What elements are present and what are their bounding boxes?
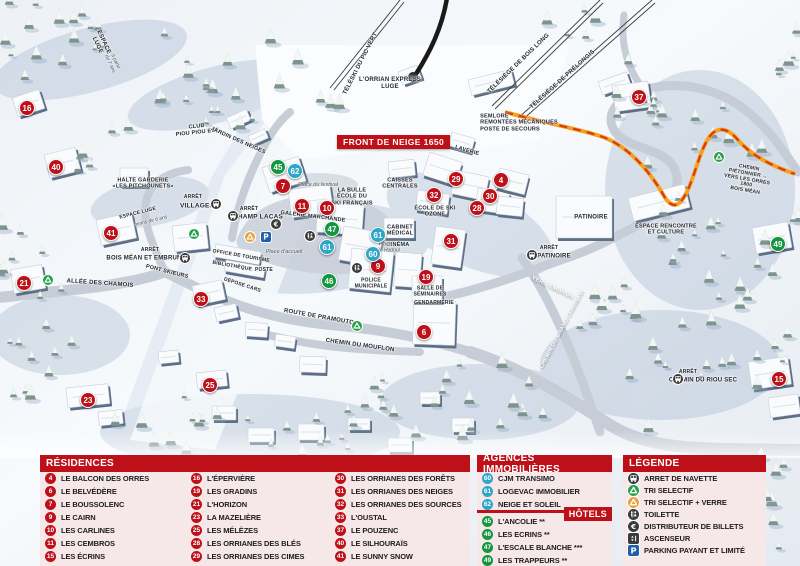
legend-item-label: CJM TRANSIMO — [498, 474, 555, 483]
legend-item: 30LES ORRIANES DES FORÊTS — [330, 472, 470, 485]
legend-item: 40LE SILHOURAÏS — [330, 537, 470, 550]
map-marker-4[interactable]: 4 — [493, 172, 509, 188]
legend-item-label: LES CEMBROS — [61, 539, 115, 548]
legend-item-label: LE SILHOURAÏS — [351, 539, 408, 548]
marker-number-badge: 33 — [335, 512, 346, 523]
marker-number-badge: 40 — [335, 538, 346, 549]
bus-icon — [628, 473, 639, 484]
map-marker-15[interactable]: 15 — [771, 371, 787, 387]
legend-item-label: LE BELVÉDÈRE — [61, 487, 117, 496]
recycle-green-icon — [352, 321, 362, 331]
toilet-icon — [628, 509, 639, 520]
map-label: VERS EMBRUN → — [530, 275, 582, 305]
legend-item: 9LE CAIRN — [40, 511, 186, 524]
map-label: ÉCOLE DE SKI OZONE — [414, 206, 455, 219]
legend-item-label: LES MÉLÈZES — [207, 526, 258, 535]
legend-item: 19LES GRADINS — [186, 485, 330, 498]
residences-column: 16L'ÉPERVIÈRE19LES GRADINS21L'HORIZON23L… — [186, 472, 330, 563]
marker-number-badge: 30 — [335, 473, 346, 484]
legend-item-label: NEIGE ET SOLEIL — [498, 500, 561, 509]
bus-icon — [673, 374, 683, 384]
legend-item: 33L'OUSTAL — [330, 511, 470, 524]
marker-number-badge: 28 — [191, 538, 202, 549]
marker-number-badge: 10 — [45, 525, 56, 536]
map-label: ROUTE DE PRAMOUTON — [283, 308, 359, 328]
marker-number-badge: 21 — [191, 499, 202, 510]
legend-item: ASCENSEUR — [623, 532, 766, 544]
marker-number-badge: 41 — [335, 551, 346, 562]
legende-header: LÉGENDE — [623, 455, 766, 472]
legend-item: 46LES ECRINS ** — [477, 528, 612, 541]
map-label: SALLE DE SÉMINAIRES — [413, 286, 446, 298]
marker-number-badge: 29 — [191, 551, 202, 562]
legend-item-label: L'ANCOLIE ** — [498, 517, 545, 526]
map-label: PATINOIRE — [537, 254, 571, 261]
map-label: GENDARMERIE — [414, 301, 454, 307]
map-label: POSTE — [255, 268, 273, 274]
legend-agences-hotels: AGENCES IMMOBILIÈRES 60CJM TRANSIMO61LOG… — [477, 455, 612, 566]
hotels-header: HÔTELS — [564, 507, 612, 521]
legend-item: PARKING PAYANT ET LIMITÉ — [623, 544, 766, 556]
recycle-green-icon — [189, 229, 199, 239]
map-label: CHEMIN DU MOUFLON — [325, 338, 395, 354]
map-label: ARRÊT — [141, 248, 159, 254]
marker-number-badge: 46 — [482, 529, 493, 540]
marker-number-badge: 61 — [482, 486, 493, 497]
legend-item-label: LES CARLINES — [61, 526, 115, 535]
legend-item: 6LE BELVÉDÈRE — [40, 485, 186, 498]
legend-item: 16L'ÉPERVIÈRE — [186, 472, 330, 485]
euro-icon — [628, 521, 639, 532]
map-label: LA BULLE ÉCOLE DU SKI FRANÇAIS — [331, 188, 373, 207]
legend-item: 4LE BALCON DES ORRES — [40, 472, 186, 485]
legend-item: DISTRIBUTEUR DE BILLETS — [623, 520, 766, 532]
legend-item-label: LE BALCON DES ORRES — [61, 474, 149, 483]
legend-item-label: L'ESCALE BLANCHE *** — [498, 543, 582, 552]
map-marker-62[interactable]: 62 — [287, 163, 303, 179]
map-marker-46[interactable]: 46 — [321, 273, 337, 289]
map-label: JARDIN DES NEIGES — [210, 126, 266, 156]
map-marker-7[interactable]: 7 — [275, 178, 291, 194]
legend-item: 21L'HORIZON — [186, 498, 330, 511]
marker-number-badge: 16 — [191, 473, 202, 484]
marker-number-badge: 31 — [335, 486, 346, 497]
legend-item: 60CJM TRANSIMO — [477, 472, 612, 485]
legend-item: TRI SELECTIF — [623, 484, 766, 496]
marker-number-badge: 49 — [482, 555, 493, 566]
marker-number-badge: 47 — [482, 542, 493, 553]
legend-item: 7LE BOUSSOLENC — [40, 498, 186, 511]
legend-symbols: LÉGENDE ARRET DE NAVETTETRI SELECTIFTRI … — [623, 455, 766, 566]
recycle-green-icon — [628, 485, 639, 496]
legend-item-label: TRI SELECTIF — [644, 486, 693, 495]
map-label: ARRÊT — [184, 195, 202, 201]
recycle-yellow-icon — [245, 232, 255, 242]
marker-number-badge: 7 — [45, 499, 56, 510]
marker-number-badge: 4 — [45, 473, 56, 484]
marker-number-badge: 25 — [191, 525, 202, 536]
legend-item: 49LES TRAPPEURS ** — [477, 554, 612, 566]
legend-item-label: LES ECRINS ** — [498, 530, 550, 539]
map-label: BOIS MÉAN ET EMBRUN — [106, 256, 181, 263]
legend-item-label: LES TRAPPEURS ** — [498, 556, 567, 565]
legend-item-label: TOILETTE — [644, 510, 679, 519]
map-marker-41[interactable]: 41 — [103, 225, 119, 241]
recycle-green-icon — [43, 275, 53, 285]
map-marker-31[interactable]: 31 — [443, 233, 459, 249]
map-marker-11[interactable]: 11 — [294, 198, 310, 214]
toilet-icon — [352, 263, 362, 273]
marker-number-badge: 19 — [191, 486, 202, 497]
marker-number-badge: 37 — [335, 525, 346, 536]
recycle-yellow-icon — [628, 497, 639, 508]
map-marker-47[interactable]: 47 — [324, 221, 340, 237]
legend-item-label: L'OUSTAL — [351, 513, 387, 522]
map-marker-45[interactable]: 45 — [270, 159, 286, 175]
resort-map-page: € P — [0, 0, 800, 566]
euro-icon — [271, 219, 281, 229]
legend-item-label: DISTRIBUTEUR DE BILLETS — [644, 522, 743, 531]
map-label: CHEMIN PIÉTONNIER → VERS LES ORRES 1800 … — [718, 161, 775, 199]
bus-icon — [228, 211, 238, 221]
marker-number-badge: 6 — [45, 486, 56, 497]
legend-item-label: LE CAIRN — [61, 513, 96, 522]
recycle-green-icon — [714, 152, 724, 162]
marker-number-badge: 60 — [482, 473, 493, 484]
legend-item: 61LOGEVAC IMMOBILIER — [477, 485, 612, 498]
map-marker-60[interactable]: 60 — [365, 246, 381, 262]
legend-item: 23LA MAZELIÈRE — [186, 511, 330, 524]
map-marker-28[interactable]: 28 — [469, 200, 485, 216]
map-label: POLICE MUNICIPALE — [355, 278, 388, 290]
map-label: VILLAGES — [180, 202, 214, 209]
front-de-neige-banner: FRONT DE NEIGE 1650 — [337, 135, 450, 149]
map-label: BIBLIOTHÈQUE — [212, 261, 253, 274]
toilet-icon — [305, 231, 315, 241]
map-label: Place du festival — [298, 182, 338, 188]
map-label: Place d'accueil — [266, 249, 303, 255]
map-label: à partir de 7 ans — [103, 52, 122, 74]
map-label: SEMLORE REMONTÉES MÉCANIQUES POSTE DE SE… — [480, 114, 558, 133]
legend-item-label: LES ORRIANES DES FORÊTS — [351, 474, 455, 483]
map-marker-16[interactable]: 16 — [19, 100, 35, 116]
map-label: ESPACE RENCONTRE ET CULTURE — [635, 224, 697, 237]
map-marker-32[interactable]: 32 — [426, 187, 442, 203]
legend-item: 29LES ORRIANES DES CIMES — [186, 550, 330, 563]
map-marker-19[interactable]: 19 — [418, 269, 434, 285]
legend-item: 25LES MÉLÈZES — [186, 524, 330, 537]
marker-number-badge: 15 — [45, 551, 56, 562]
agences-header: AGENCES IMMOBILIÈRES — [477, 455, 612, 472]
marker-number-badge: 62 — [482, 499, 493, 510]
legend-item-label: L'HORIZON — [207, 500, 247, 509]
map-label: PATINOIRE — [574, 215, 608, 222]
map-marker-49[interactable]: 49 — [770, 236, 786, 252]
map-label: DÉPOSE CARS — [223, 277, 261, 294]
legend-item-label: LA MAZELIÈRE — [207, 513, 261, 522]
legend-item: 41LE SUNNY SNOW — [330, 550, 470, 563]
legend-item: 15LES ÉCRINS — [40, 550, 186, 563]
map-marker-29[interactable]: 29 — [448, 171, 464, 187]
marker-number-badge: 9 — [45, 512, 56, 523]
map-label: CABINET MÉDICAL — [387, 225, 413, 238]
map-marker-25[interactable]: 25 — [202, 377, 218, 393]
legend-item: 47L'ESCALE BLANCHE *** — [477, 541, 612, 554]
bus-icon — [180, 253, 190, 263]
map-label: ARRÊT — [540, 246, 558, 252]
legend-item: TOILETTE — [623, 508, 766, 520]
map-label: moins de 6 ans — [134, 215, 168, 229]
marker-number-badge: 32 — [335, 499, 346, 510]
residences-header: RÉSIDENCES — [40, 455, 470, 472]
map-marker-30[interactable]: 30 — [482, 188, 498, 204]
map-label: TÉLÉSIÈGE DE PRÉLONGIS — [529, 49, 597, 111]
bus-icon — [527, 250, 537, 260]
marker-number-badge: 45 — [482, 516, 493, 527]
legend-item: 10LES CARLINES — [40, 524, 186, 537]
map-marker-6[interactable]: 6 — [416, 324, 432, 340]
legend-item-label: LES GRADINS — [207, 487, 257, 496]
legend-item-label: ASCENSEUR — [644, 534, 690, 543]
map-label: TÉLÉSIÈGE DE BOIS LONG — [487, 33, 552, 96]
map-label: HALTE GARDERIE «LES PITCHOUNETS» — [112, 178, 173, 191]
legend-item-label: LE SUNNY SNOW — [351, 552, 413, 561]
residences-list: 4LE BALCON DES ORRES6LE BELVÉDÈRE7LE BOU… — [40, 472, 470, 566]
hotels-divider — [477, 510, 572, 513]
elevator-icon — [628, 533, 639, 544]
legend-item-label: LES ORRIANES DES NEIGES — [351, 487, 453, 496]
legend-item-label: LE POUZENC — [351, 526, 398, 535]
marker-number-badge: 23 — [191, 512, 202, 523]
map-marker-61[interactable]: 61 — [370, 227, 386, 243]
legend-item-label: PARKING PAYANT ET LIMITÉ — [644, 546, 745, 555]
legend-item: 11LES CEMBROS — [40, 537, 186, 550]
legend-item-label: LES ORRIANES DES BLÉS — [207, 539, 301, 548]
legend-item-label: LES ORRIANES DES CIMES — [207, 552, 304, 561]
legend-item-label: LES ÉCRINS — [61, 552, 105, 561]
map-label: ALLÉE DES CHAMOIS — [66, 278, 133, 290]
map-label: PONT SKIEURS — [145, 264, 189, 281]
legend-residences: RÉSIDENCES 4LE BALCON DES ORRES6LE BELVÉ… — [40, 455, 470, 566]
parking-icon — [261, 232, 271, 242]
map-marker-40[interactable]: 40 — [48, 159, 64, 175]
map-label: LAVERIE — [454, 145, 480, 158]
legend-item: 28LES ORRIANES DES BLÉS — [186, 537, 330, 550]
legend-item: ARRET DE NAVETTE — [623, 472, 766, 484]
legend-item: 32LES ORRIANES DES SOURCES — [330, 498, 470, 511]
map-marker-10[interactable]: 10 — [319, 200, 335, 216]
map-marker-33[interactable]: 33 — [193, 291, 209, 307]
map-marker-23[interactable]: 23 — [80, 392, 96, 408]
legend-item: 37LE POUZENC — [330, 524, 470, 537]
bus-icon — [211, 199, 221, 209]
map-label: L'ORRIAN EXPRESS LUGE — [359, 77, 421, 91]
legend-item-label: ARRET DE NAVETTE — [644, 474, 717, 483]
legend-item-label: LES ORRIANES DES SOURCES — [351, 500, 462, 509]
map-label: CAISSES CENTRALES — [382, 178, 417, 191]
legend-item-label: TRI SELECTIF + VERRE — [644, 498, 727, 507]
map-marker-37[interactable]: 37 — [631, 89, 647, 105]
map-label: ARRÊT — [240, 207, 258, 213]
parking-icon — [628, 545, 639, 556]
marker-number-badge: 11 — [45, 538, 56, 549]
map-marker-21[interactable]: 21 — [16, 275, 32, 291]
legend-item-label: LOGEVAC IMMOBILIER — [498, 487, 580, 496]
legend-item-label: L'ÉPERVIÈRE — [207, 474, 255, 483]
legend-item: TRI SELECTIF + VERRE — [623, 496, 766, 508]
map-marker-61[interactable]: 61 — [319, 239, 335, 255]
residences-column: 30LES ORRIANES DES FORÊTS31LES ORRIANES … — [330, 472, 470, 563]
legende-list: ARRET DE NAVETTETRI SELECTIFTRI SELECTIF… — [623, 472, 766, 566]
residences-column: 4LE BALCON DES ORRES6LE BELVÉDÈRE7LE BOU… — [40, 472, 186, 563]
legend-item-label: LE BOUSSOLENC — [61, 500, 124, 509]
legend-item: 31LES ORRIANES DES NEIGES — [330, 485, 470, 498]
